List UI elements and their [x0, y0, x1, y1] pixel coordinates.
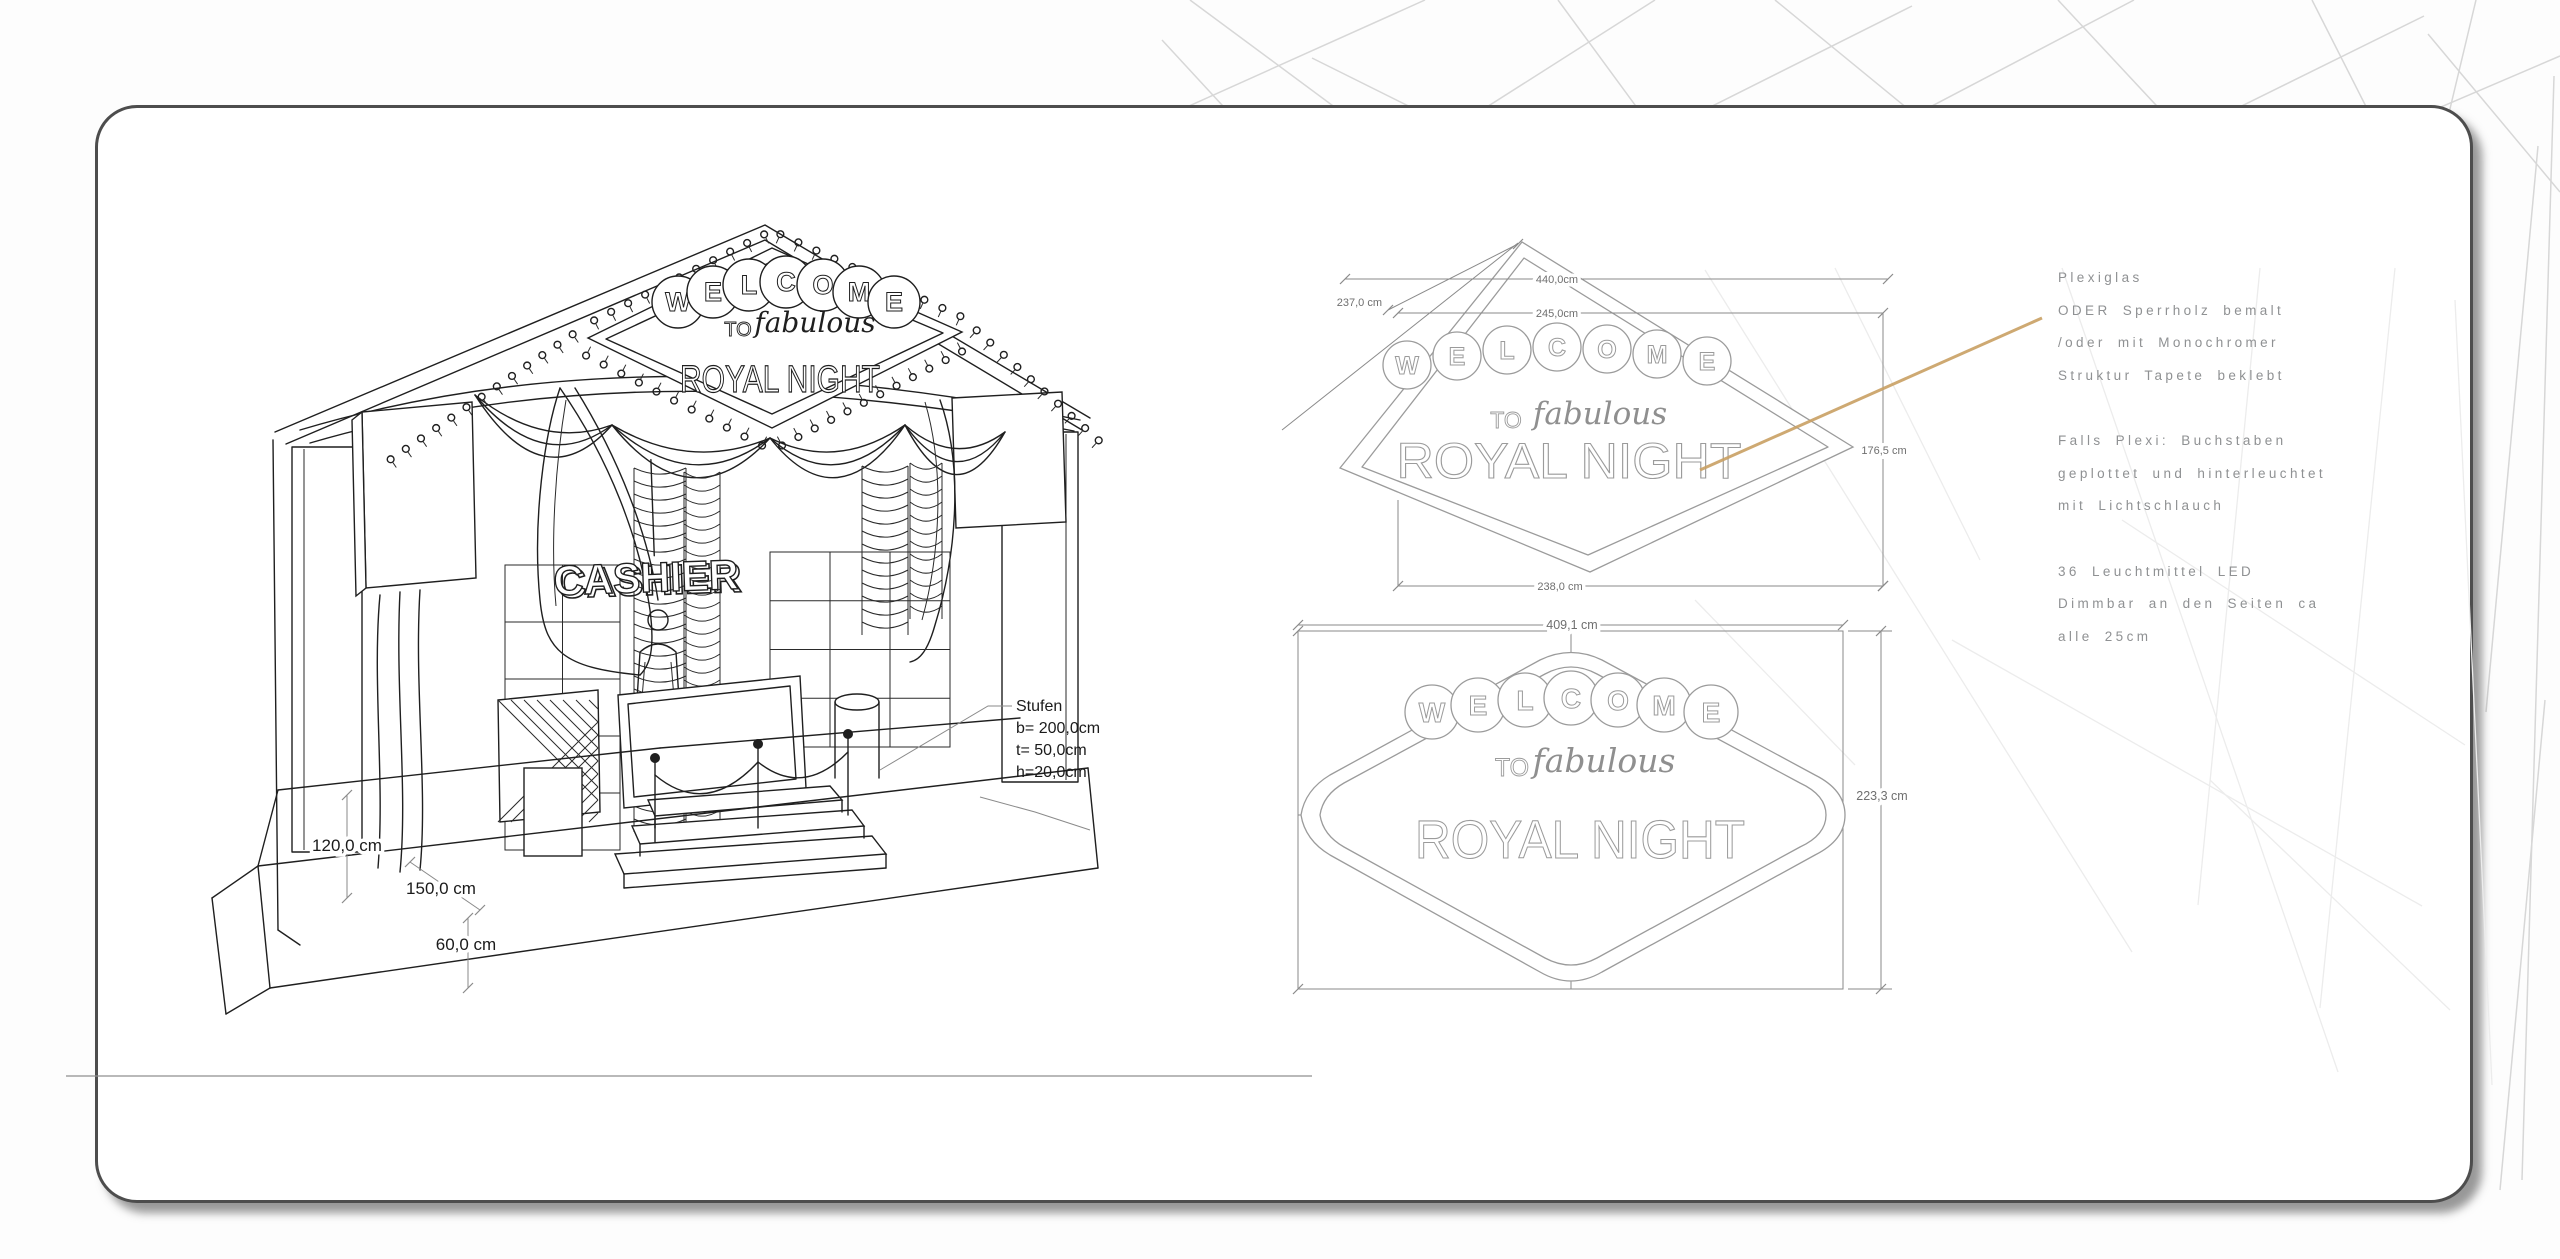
detail-line — [2522, 76, 2554, 1180]
note-line: 36 Leuchtmittel LED — [2058, 556, 2326, 589]
steps-note-height: h=20,0cm — [1016, 762, 1100, 784]
note-material: Plexiglas ODER Sperrholz bemalt /oder mi… — [2058, 262, 2326, 392]
steps-note-width: b= 200,0cm — [1016, 718, 1100, 740]
steps-note-block: Stufen b= 200,0cm t= 50,0cm h=20,0cm — [1016, 696, 1100, 784]
steps-note-title: Stufen — [1016, 696, 1100, 718]
note-line: Plexiglas — [2058, 262, 2326, 295]
note-line: geplottet und hinterleuchtet — [2058, 458, 2326, 491]
note-line: Struktur Tapete beklebt — [2058, 360, 2326, 393]
note-line: ODER Sperrholz bemalt — [2058, 295, 2326, 328]
note-line: Falls Plexi: Buchstaben — [2058, 425, 2326, 458]
note-plexi: Falls Plexi: Buchstaben geplottet und hi… — [2058, 425, 2326, 523]
note-line: /oder mit Monochromer — [2058, 327, 2326, 360]
notes-block: Plexiglas ODER Sperrholz bemalt /oder mi… — [2058, 262, 2326, 686]
steps-note-depth: t= 50,0cm — [1016, 740, 1100, 762]
note-line: mit Lichtschlauch — [2058, 490, 2326, 523]
note-lighting: 36 Leuchtmittel LED Dimmbar an den Seite… — [2058, 556, 2326, 654]
detail-line — [2500, 700, 2545, 1190]
note-line: Dimmbar an den Seiten ca — [2058, 588, 2326, 621]
note-line: alle 25cm — [2058, 621, 2326, 654]
detail-line — [2486, 146, 2538, 712]
